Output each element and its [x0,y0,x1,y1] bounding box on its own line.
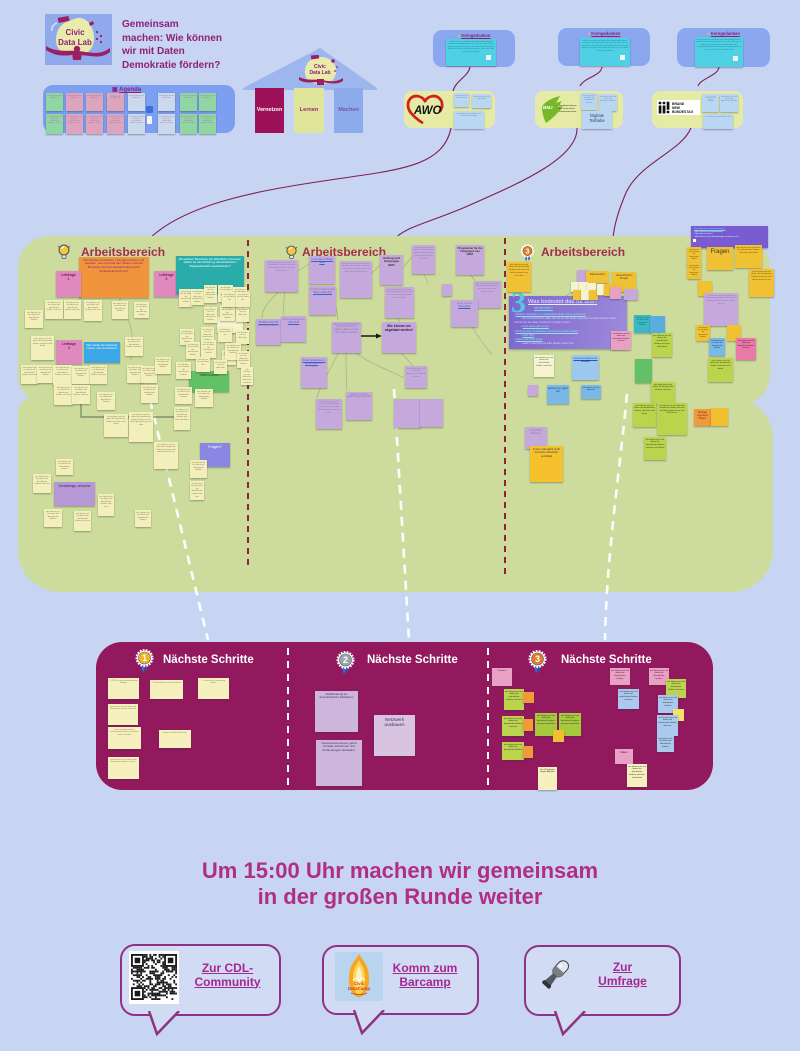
svg-text:DataCamp: DataCamp [348,986,371,991]
svg-text:2: 2 [343,655,348,665]
svg-text:1: 1 [142,653,147,663]
svg-text:3: 3 [535,654,540,664]
